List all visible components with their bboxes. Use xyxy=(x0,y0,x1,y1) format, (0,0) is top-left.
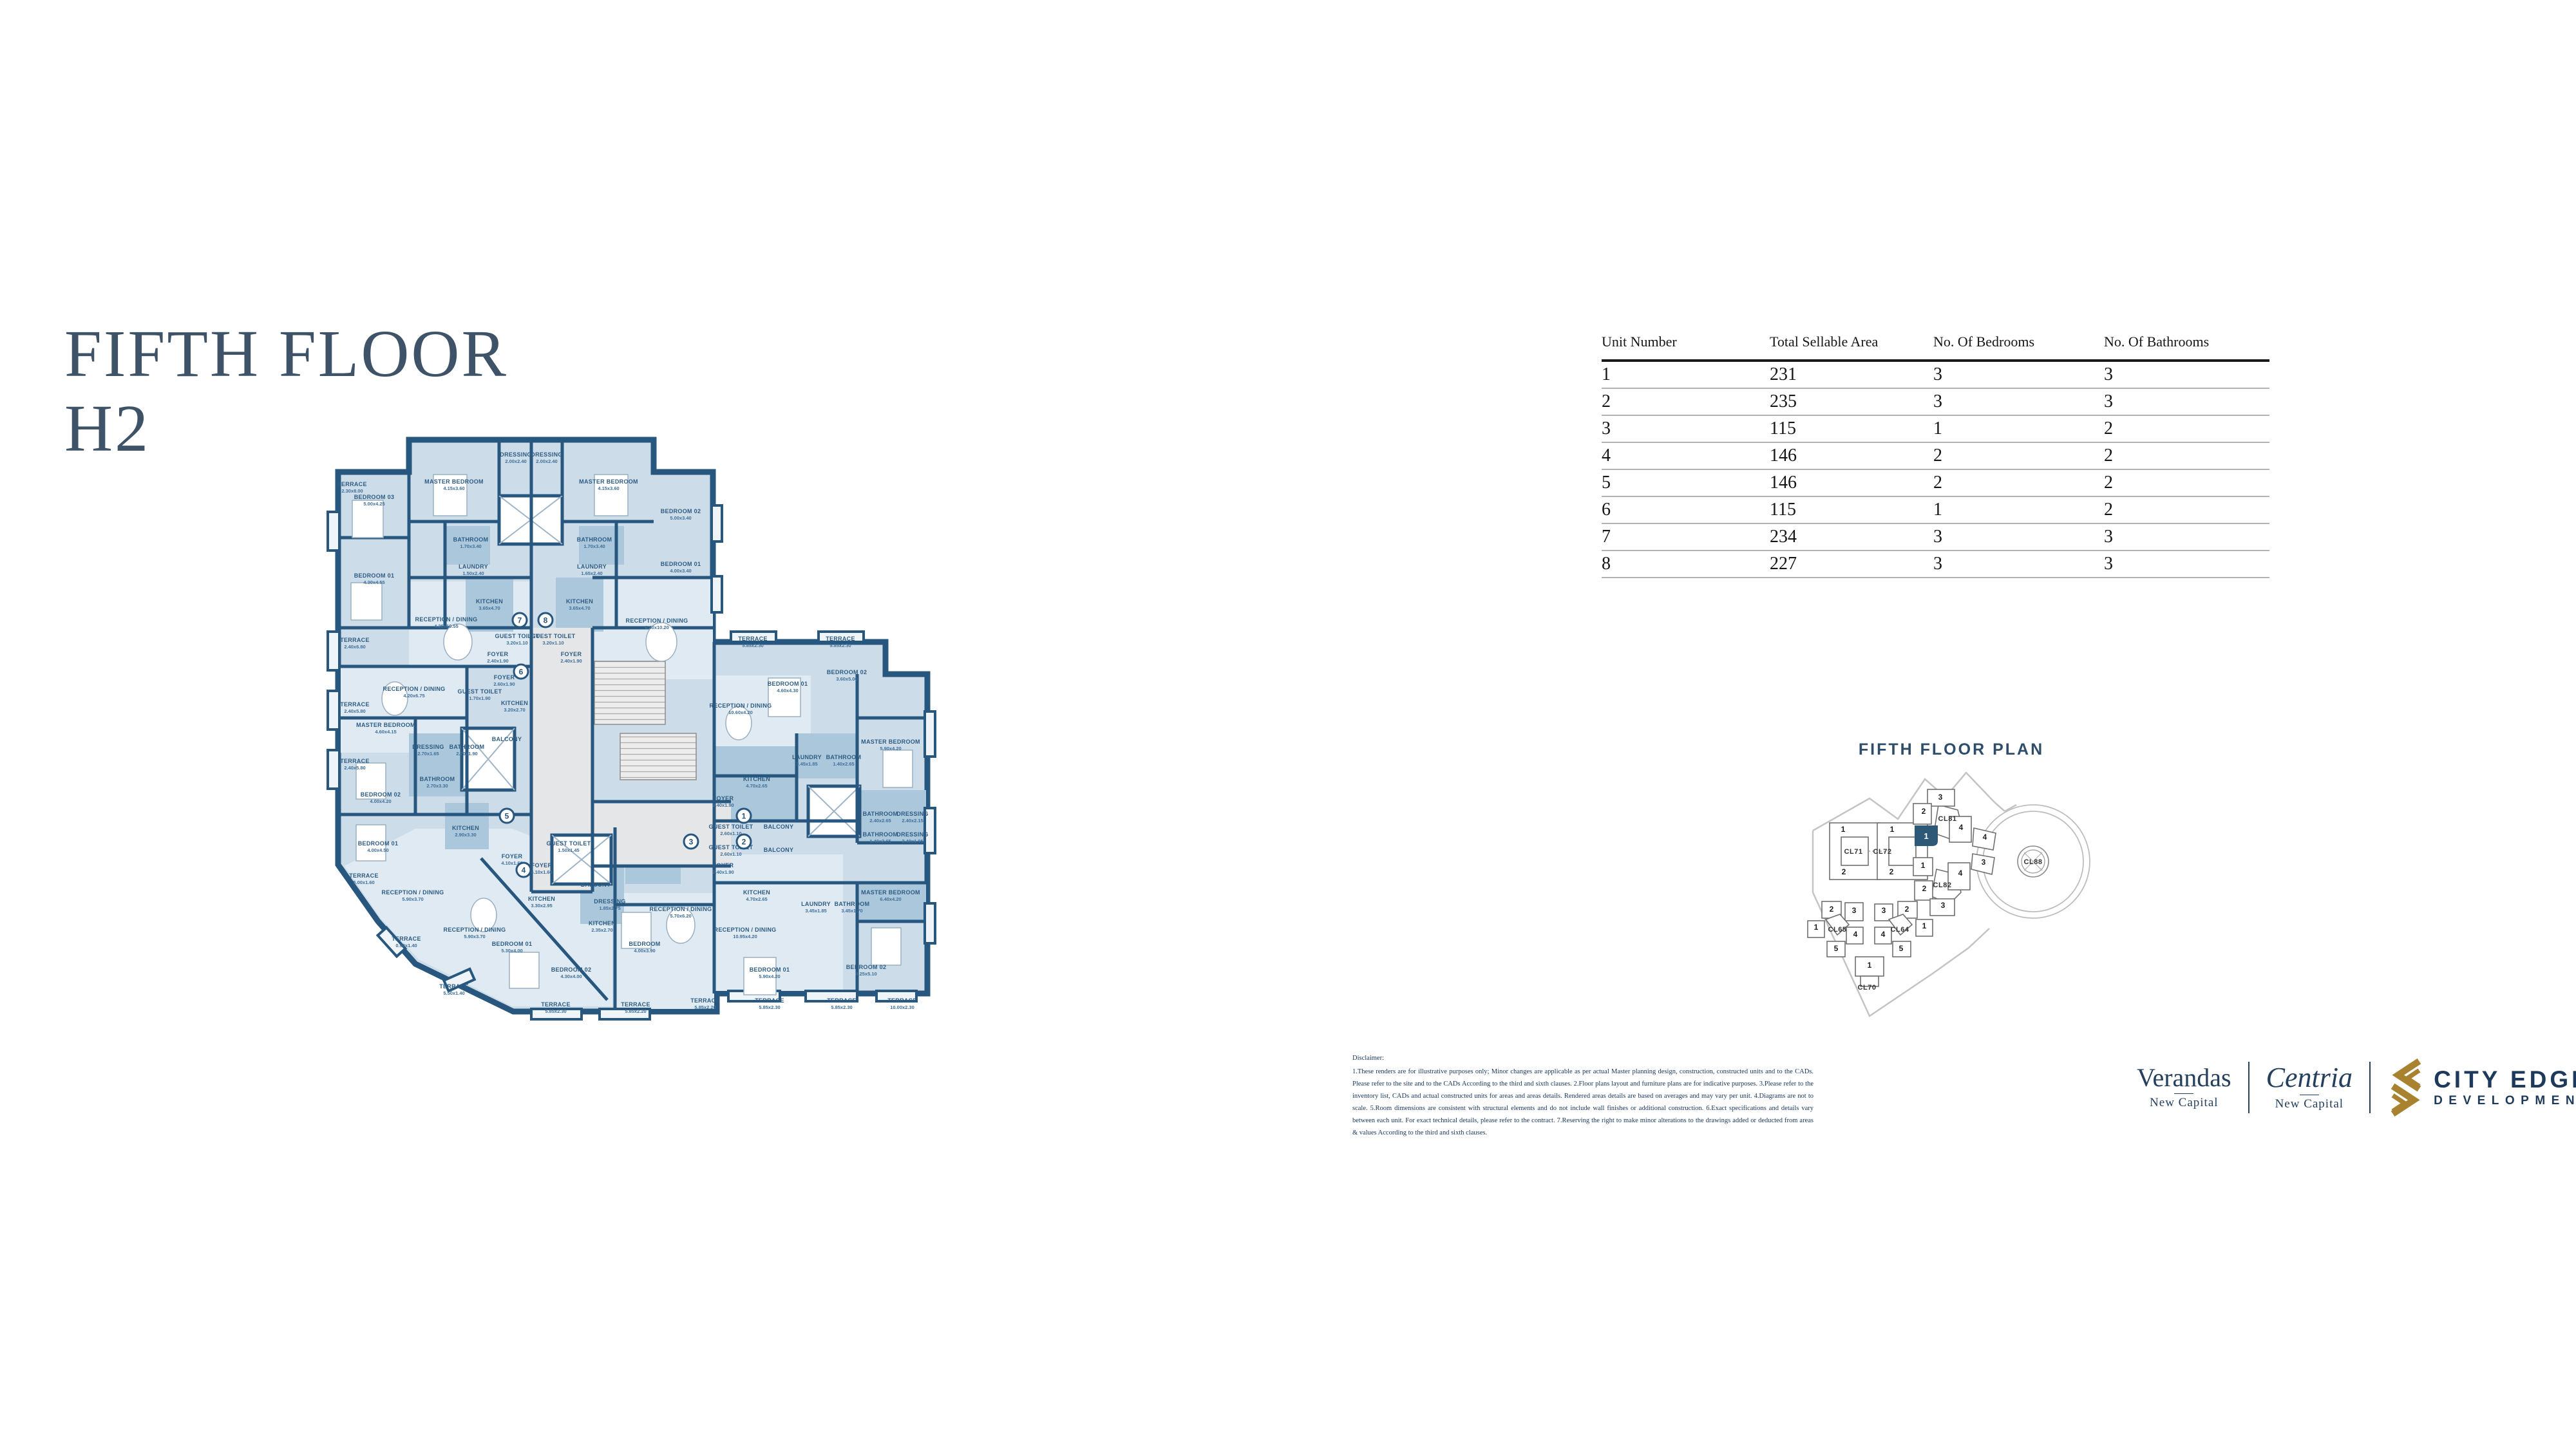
room-dimensions: 5.00x4.25 xyxy=(363,501,384,507)
room-dimensions: 5.85x2.20 xyxy=(625,1008,646,1014)
room-dimensions: 1.70x3.40 xyxy=(583,543,605,549)
room-dimensions: 3.45x1.70 xyxy=(841,908,862,914)
cluster-label: CL81 xyxy=(1938,815,1957,823)
room-dimensions: 3.20x1.10 xyxy=(542,640,563,646)
room-dimensions: 2.70x3.30 xyxy=(426,783,448,789)
table-cell: 146 xyxy=(1770,446,1933,466)
keyplan-unit-number: 4 xyxy=(1881,930,1886,939)
room-label: LAUNDRY xyxy=(577,563,607,570)
keyplan-unit-number: 2 xyxy=(1922,884,1927,893)
room-label: KITCHEN xyxy=(743,889,770,896)
verandas-logo: Verandas New Capital xyxy=(2137,1065,2231,1111)
unit-badge-number: 6 xyxy=(519,668,524,677)
keyplan-unit-number: 3 xyxy=(1938,793,1943,802)
cluster-label: CL88 xyxy=(2024,858,2043,866)
table-cell: 3 xyxy=(1933,364,2104,385)
keyplan-unit-number: 1 xyxy=(1922,921,1927,930)
room-dimensions: 3.20x2.70 xyxy=(504,707,525,713)
room-label: FOYER xyxy=(713,862,734,869)
room-dimensions: 4.10x1.60 xyxy=(531,869,552,875)
room-label: MASTER BEDROOM xyxy=(579,478,638,485)
table-cell: 146 xyxy=(1770,473,1933,493)
room-label: KITCHEN xyxy=(452,825,479,831)
room-dimensions: 2.40x2.15 xyxy=(902,818,923,824)
keyplan-unit-number: 5 xyxy=(1899,944,1904,953)
keyplan-unit-number: 2 xyxy=(1830,905,1834,914)
centria-subtitle: New Capital xyxy=(2275,1097,2344,1111)
room-label: DRESSING xyxy=(500,451,531,458)
room-dimensions: 2.40x2.65 xyxy=(869,818,891,824)
room-label: DRESSING xyxy=(594,898,625,905)
room-dimensions: 4.70x2.65 xyxy=(746,783,767,789)
verandas-subtitle: New Capital xyxy=(2150,1096,2219,1110)
centria-wordmark: Centria xyxy=(2266,1064,2353,1092)
unit-badge-number: 4 xyxy=(522,866,526,875)
room-label: TERRACE xyxy=(439,983,469,990)
keyplan-unit-number: 4 xyxy=(1958,869,1963,878)
room-label: DRESSING xyxy=(531,451,562,458)
keyplan-unit-number: 1 xyxy=(1890,825,1895,834)
room-label: TERRACE xyxy=(340,758,370,764)
centria-logo: Centria New Capital xyxy=(2266,1064,2353,1112)
table-cell: 115 xyxy=(1770,419,1933,439)
room-dimensions: 3.20x1.10 xyxy=(506,640,527,646)
page: FIFTH FLOOR H2 xyxy=(0,0,2576,1450)
centria-rule xyxy=(2300,1095,2319,1096)
table-header-cell: No. Of Bedrooms xyxy=(1933,334,2104,350)
room-dimensions: 2.60x1.10 xyxy=(720,851,741,857)
table-header-row: Unit NumberTotal Sellable AreaNo. Of Bed… xyxy=(1602,334,2269,362)
room-dimensions: 2.70x1.90 xyxy=(456,751,477,757)
room-dimensions: 2.00x2.40 xyxy=(536,458,557,464)
room-dimensions: 4.25x10.55 xyxy=(434,623,459,629)
room-dimensions: 1.85x2.75 xyxy=(599,905,620,911)
room-dimensions: 2.60x1.10 xyxy=(720,831,741,836)
room-dimensions: 4.30x4.55 xyxy=(363,579,384,585)
room-dimensions: 2.40x6.80 xyxy=(344,644,365,650)
room-dimensions: 2.40x1.95 xyxy=(902,838,923,844)
room-label: TERRACE xyxy=(349,872,379,879)
room-dimensions: 3.65x4.70 xyxy=(569,605,590,611)
table-cell: 3 xyxy=(2104,364,2269,385)
unit-badge-number: 8 xyxy=(544,616,548,625)
room-dimensions: 4.70x2.65 xyxy=(746,896,767,902)
room-label: BEDROOM 01 xyxy=(768,681,808,687)
unit-badge-number: 2 xyxy=(742,838,746,847)
room-dimensions: 4.25x5.10 xyxy=(855,971,876,977)
keyplan-unit-number: 5 xyxy=(1834,944,1839,953)
room-dimensions: 2.35x2.70 xyxy=(591,927,612,933)
cityedge-subtitle: DEVELOPMENTS xyxy=(2434,1094,2576,1108)
room-dimensions: 5.90x4.20 xyxy=(880,746,901,751)
room-label: BEDROOM 01 xyxy=(661,561,701,567)
cluster-label: CL72 xyxy=(1873,848,1892,856)
table-cell: 7 xyxy=(1602,527,1770,547)
cluster-label: CL82 xyxy=(1933,881,1952,889)
room-dimensions: 1.50x1.45 xyxy=(558,847,579,853)
keyplan-unit-number: 2 xyxy=(1922,807,1926,816)
room-label: RECEPTION / DINING xyxy=(710,702,772,709)
table-cell: 3 xyxy=(2104,391,2269,412)
table-row: 123133 xyxy=(1602,362,2269,389)
keyplan-unit-number: 2 xyxy=(1905,905,1909,914)
room-label: RECEPTION / DINING xyxy=(626,617,688,624)
table-cell: 2 xyxy=(1933,473,2104,493)
room-dimensions: 2.40x1.90 xyxy=(487,658,508,664)
room-dimensions: 0.90x1.40 xyxy=(395,943,417,948)
room-dimensions: 5.85x2.30 xyxy=(545,1008,566,1014)
room-dimensions: 10.60x4.20 xyxy=(728,710,753,715)
room-dimensions: 4.00x3.40 xyxy=(670,568,691,574)
cluster-label: CL65 xyxy=(1828,926,1847,934)
room-dimensions: 2.40x5.80 xyxy=(344,708,365,714)
unit-badge-number: 1 xyxy=(742,812,746,821)
room-label: BEDROOM 02 xyxy=(661,508,701,514)
floor-plan-drawing: MASTER BEDROOM4.15x3.60DRESSING2.00x2.40… xyxy=(319,415,943,1027)
room-label: RECEPTION / DINING xyxy=(415,616,478,623)
table-cell: 3 xyxy=(1933,527,2104,547)
table-cell: 5 xyxy=(1602,473,1770,493)
keyplan-unit-number: 3 xyxy=(1982,858,1986,867)
room-label: BALCONY xyxy=(492,736,522,742)
keyplan-unit-number: 2 xyxy=(1842,867,1846,876)
table-cell: 3 xyxy=(2104,554,2269,574)
table-row: 311512 xyxy=(1602,416,2269,443)
room-dimensions: 3.45x1.85 xyxy=(805,908,826,914)
room-label: RECEPTION / DINING xyxy=(444,927,506,933)
table-cell: 3 xyxy=(1602,419,1770,439)
room-dimensions: 5.85x2.20 xyxy=(694,1004,715,1010)
room-label: KITCHEN xyxy=(566,598,593,605)
cluster-buildings xyxy=(1808,789,1996,986)
room-dimensions: 4.15x3.60 xyxy=(598,485,619,491)
room-label: DRESSING xyxy=(896,811,928,817)
room-label: BEDROOM 02 xyxy=(361,791,401,798)
verandas-rule xyxy=(2174,1093,2193,1095)
table-cell: 3 xyxy=(1933,554,2104,574)
keyplan-unit-number: 4 xyxy=(1983,833,1987,842)
room-dimensions: 5.85x2.30 xyxy=(829,643,851,648)
room-dimensions: 5.85x2.30 xyxy=(831,1004,852,1010)
room-dimensions: 5.85x2.30 xyxy=(742,643,763,648)
keyplan-unit-number: 1 xyxy=(1921,861,1926,870)
table-cell: 8 xyxy=(1602,554,1770,574)
room-dimensions: 2.40x1.90 xyxy=(712,869,734,875)
room-label: RECEPTION / DINING xyxy=(382,889,444,896)
cityedge-name: CITY EDGE xyxy=(2434,1067,2576,1093)
room-label: BEDROOM 01 xyxy=(358,840,399,847)
table-row: 223533 xyxy=(1602,389,2269,416)
room-dimensions: 4.00x4.20 xyxy=(370,798,391,804)
room-dimensions: 5.00x3.40 xyxy=(670,515,691,521)
room-label: BEDROOM 02 xyxy=(846,964,887,970)
cluster-label: CL64 xyxy=(1891,926,1909,934)
room-label: TERRACE xyxy=(541,1001,571,1008)
room-label: TERRACE xyxy=(827,997,857,1004)
room-dimensions: 1.40x2.65 xyxy=(869,838,891,844)
room-dimensions: 1.70x3.40 xyxy=(460,543,481,549)
table-cell: 6 xyxy=(1602,500,1770,520)
keyplan-unit-number: 3 xyxy=(1882,906,1886,915)
room-label: GUEST TOILET xyxy=(531,633,576,639)
table-cell: 231 xyxy=(1770,364,1933,385)
unit-badge-number: 7 xyxy=(518,616,522,625)
room-label: FOYER xyxy=(502,853,523,860)
keyplan-unit-number: 1 xyxy=(1814,923,1819,932)
room-label: KITCHEN xyxy=(528,896,555,902)
room-label: BEDROOM 02 xyxy=(827,669,867,675)
page-title-line1: FIFTH FLOOR xyxy=(64,317,508,391)
room-dimensions: 2.40x1.90 xyxy=(560,658,582,664)
room-label: BEDROOM 01 xyxy=(492,941,533,947)
keyplan-unit-number: 4 xyxy=(1959,823,1964,832)
room-label: KITCHEN xyxy=(501,700,528,706)
room-label: KITCHEN xyxy=(589,920,616,927)
room-label: LAUNDRY xyxy=(801,901,831,907)
room-dimensions: 5.90x4.20 xyxy=(759,974,780,979)
room-dimensions: 1.70x1.90 xyxy=(469,695,490,701)
keyplan-unit-number: 1 xyxy=(1841,825,1846,834)
room-dimensions: 10.95x4.20 xyxy=(733,934,757,939)
table-cell: 2 xyxy=(1602,391,1770,412)
room-dimensions: 5.70x6.20 xyxy=(670,913,691,919)
room-label: TERRACE xyxy=(340,637,370,643)
room-dimensions: 5.90x3.70 xyxy=(464,934,485,939)
room-label: TERRACE xyxy=(340,701,370,708)
room-label: MASTER BEDROOM xyxy=(424,478,484,485)
disclaimer-heading: Disclaimer: xyxy=(1352,1052,1814,1064)
table-cell: 235 xyxy=(1770,391,1933,412)
table-header-cell: Unit Number xyxy=(1602,334,1770,350)
table-header-cell: No. Of Bathrooms xyxy=(2104,334,2269,350)
room-label: BEDROOM 02 xyxy=(551,966,592,973)
room-dimensions: 2.40x5.80 xyxy=(344,765,365,771)
room-label: RECEPTION / DINING xyxy=(650,906,712,912)
room-label: TERRACE xyxy=(621,1001,650,1008)
table-cell: 2 xyxy=(1933,446,2104,466)
room-dimensions: 2.00x2.40 xyxy=(505,458,526,464)
table-row: 611512 xyxy=(1602,497,2269,524)
room-label: BALCONY xyxy=(764,824,794,830)
brand-logos: Verandas New Capital Centria New Capital… xyxy=(2137,1057,2576,1118)
room-dimensions: 5.85x2.30 xyxy=(759,1004,780,1010)
room-label: TERRACE xyxy=(738,636,768,642)
room-label: KITCHEN xyxy=(476,598,503,605)
logo-divider xyxy=(2248,1062,2249,1113)
verandas-wordmark: Verandas xyxy=(2137,1065,2231,1091)
highlighted-unit-label: 1 xyxy=(1924,831,1928,841)
room-label: BATHROOM xyxy=(577,536,612,543)
keyplan-unit-number: 3 xyxy=(1941,901,1946,910)
room-dimensions: 2.30x8.00 xyxy=(341,488,363,494)
table-cell: 2 xyxy=(2104,473,2269,493)
table-row: 822733 xyxy=(1602,551,2269,578)
room-dimensions: 3.45x1.85 xyxy=(796,761,817,767)
room-dimensions: 10.00x2.30 xyxy=(890,1004,914,1010)
room-dimensions: 5.50x1.40 xyxy=(443,990,464,996)
room-label: LAUNDRY xyxy=(792,754,822,760)
table-cell: 4 xyxy=(1602,446,1770,466)
room-label: FOYER xyxy=(561,651,582,657)
room-dimensions: 2.90x3.30 xyxy=(455,832,476,838)
table-cell: 1 xyxy=(1933,500,2104,520)
room-dimensions: 6.40x10.20 xyxy=(645,625,669,630)
room-label: MASTER BEDROOM xyxy=(861,739,920,745)
room-dimensions: 4.20x6.75 xyxy=(403,693,424,699)
room-dimensions: 5.30x4.00 xyxy=(501,948,522,954)
keyplan-unit-number: 4 xyxy=(1853,930,1858,939)
room-label: BATHROOM xyxy=(453,536,489,543)
logo-divider xyxy=(2369,1062,2371,1113)
room-label: BEDROOM 01 xyxy=(750,966,790,973)
room-label: TERRACE xyxy=(887,997,917,1004)
table-row: 414622 xyxy=(1602,443,2269,470)
room-label: FOYER xyxy=(488,651,509,657)
room-dimensions: 4.15x3.60 xyxy=(443,485,464,491)
disclaimer-body: 1.These renders are for illustrative pur… xyxy=(1352,1066,1814,1139)
table-cell: 3 xyxy=(2104,527,2269,547)
unit-badge-number: 3 xyxy=(689,838,694,847)
room-label: RECEPTION / DINING xyxy=(383,686,446,692)
table-cell: 227 xyxy=(1770,554,1933,574)
room-label: FOYER xyxy=(494,674,515,681)
cityedge-text: CITY EDGE DEVELOPMENTS xyxy=(2434,1067,2576,1109)
table-row: 514622 xyxy=(1602,470,2269,497)
room-label: BATHROOM xyxy=(835,901,870,907)
cityedge-logo: CITY EDGE DEVELOPMENTS xyxy=(2387,1057,2576,1118)
room-label: TERRACE xyxy=(337,481,367,487)
room-dimensions: 5.90x3.70 xyxy=(402,896,423,902)
room-label: TERRACE xyxy=(392,936,421,942)
room-label: FOYER xyxy=(713,795,734,802)
room-dimensions: 4.00x4.50 xyxy=(367,847,388,853)
room-dimensions: 2.70x1.65 xyxy=(417,751,439,757)
room-label: BEDROOM xyxy=(629,941,660,947)
room-dimensions: 1.65x2.40 xyxy=(581,570,602,576)
cluster-label: CL71 xyxy=(1844,848,1863,856)
room-label: BATHROOM xyxy=(450,744,485,750)
key-plan-drawing: 1 CL71CL72CL81CL82CL65CL64CL70CL88 11223… xyxy=(1800,766,2103,1024)
room-label: GUEST TOILET xyxy=(547,840,591,847)
room-dimensions: 4.60x4.30 xyxy=(777,688,798,693)
room-label: DRESSING xyxy=(896,831,928,838)
room-dimensions: 3.60x5.00 xyxy=(836,676,857,682)
room-dimensions: 4.30x4.00 xyxy=(560,974,582,979)
room-label: GUEST TOILET xyxy=(458,688,502,695)
table-cell: 3 xyxy=(1933,391,2104,412)
table-cell: 1 xyxy=(1602,364,1770,385)
keyplan-unit-number: 3 xyxy=(1852,906,1857,915)
table-cell: 115 xyxy=(1770,500,1933,520)
room-label: MASTER BEDROOM xyxy=(861,889,920,896)
room-label: BATHROOM xyxy=(863,831,898,838)
room-dimensions: 2.40x1.90 xyxy=(712,802,734,808)
room-label: TERRACE xyxy=(690,997,720,1004)
room-label: BATHROOM xyxy=(826,754,862,760)
keyplan-unit-number: 2 xyxy=(1889,867,1894,876)
room-dimensions: 6.40x4.20 xyxy=(880,896,901,902)
room-dimensions: 3.65x4.70 xyxy=(478,605,500,611)
room-label: FOYER xyxy=(531,862,553,869)
table-cell: 2 xyxy=(2104,446,2269,466)
unit-badge-number: 5 xyxy=(505,812,509,821)
room-dimensions: 4.00x3.90 xyxy=(634,948,655,954)
room-label: GUEST TOILET xyxy=(709,824,753,830)
room-label: BALCONY xyxy=(581,881,611,888)
table-cell: 2 xyxy=(2104,419,2269,439)
room-label: RECEPTION / DINING xyxy=(714,927,777,933)
room-label: BEDROOM 01 xyxy=(354,572,395,579)
table-header-cell: Total Sellable Area xyxy=(1770,334,1933,350)
key-plan-title: FIFTH FLOOR PLAN xyxy=(1800,740,2103,759)
table-cell: 2 xyxy=(2104,500,2269,520)
table-row: 723433 xyxy=(1602,524,2269,551)
cityedge-mark-icon xyxy=(2387,1057,2425,1118)
room-dimensions: 1.50x2.40 xyxy=(462,570,484,576)
disclaimer: Disclaimer: 1.These renders are for illu… xyxy=(1352,1052,1814,1139)
table-rows: 1231332235333115124146225146226115127234… xyxy=(1602,362,2269,578)
room-dimensions: 1.40x2.65 xyxy=(833,761,854,767)
table-cell: 1 xyxy=(1933,419,2104,439)
room-label: BATHROOM xyxy=(863,811,898,817)
room-label: KITCHEN xyxy=(743,776,770,782)
room-dimensions: 3.30x2.95 xyxy=(531,903,552,909)
room-label: BALCONY xyxy=(764,847,794,853)
room-label: TERRACE xyxy=(826,636,855,642)
table-cell: 234 xyxy=(1770,527,1933,547)
unit-table: Unit NumberTotal Sellable AreaNo. Of Bed… xyxy=(1602,334,2269,578)
keyplan-unit-number: 1 xyxy=(1868,961,1872,970)
room-label: BATHROOM xyxy=(420,776,455,782)
room-label: BEDROOM 03 xyxy=(354,494,395,500)
room-dimensions: 2.60x1.90 xyxy=(493,681,515,687)
room-label: DRESSING xyxy=(412,744,444,750)
room-dimensions: 4.60x4.15 xyxy=(375,729,396,735)
cluster-label: CL70 xyxy=(1858,984,1877,992)
room-label: MASTER BEDROOM xyxy=(356,722,415,728)
room-dimensions: 5.00x1.60 xyxy=(353,880,374,885)
room-label: LAUNDRY xyxy=(459,563,488,570)
room-label: TERRACE xyxy=(755,997,784,1004)
